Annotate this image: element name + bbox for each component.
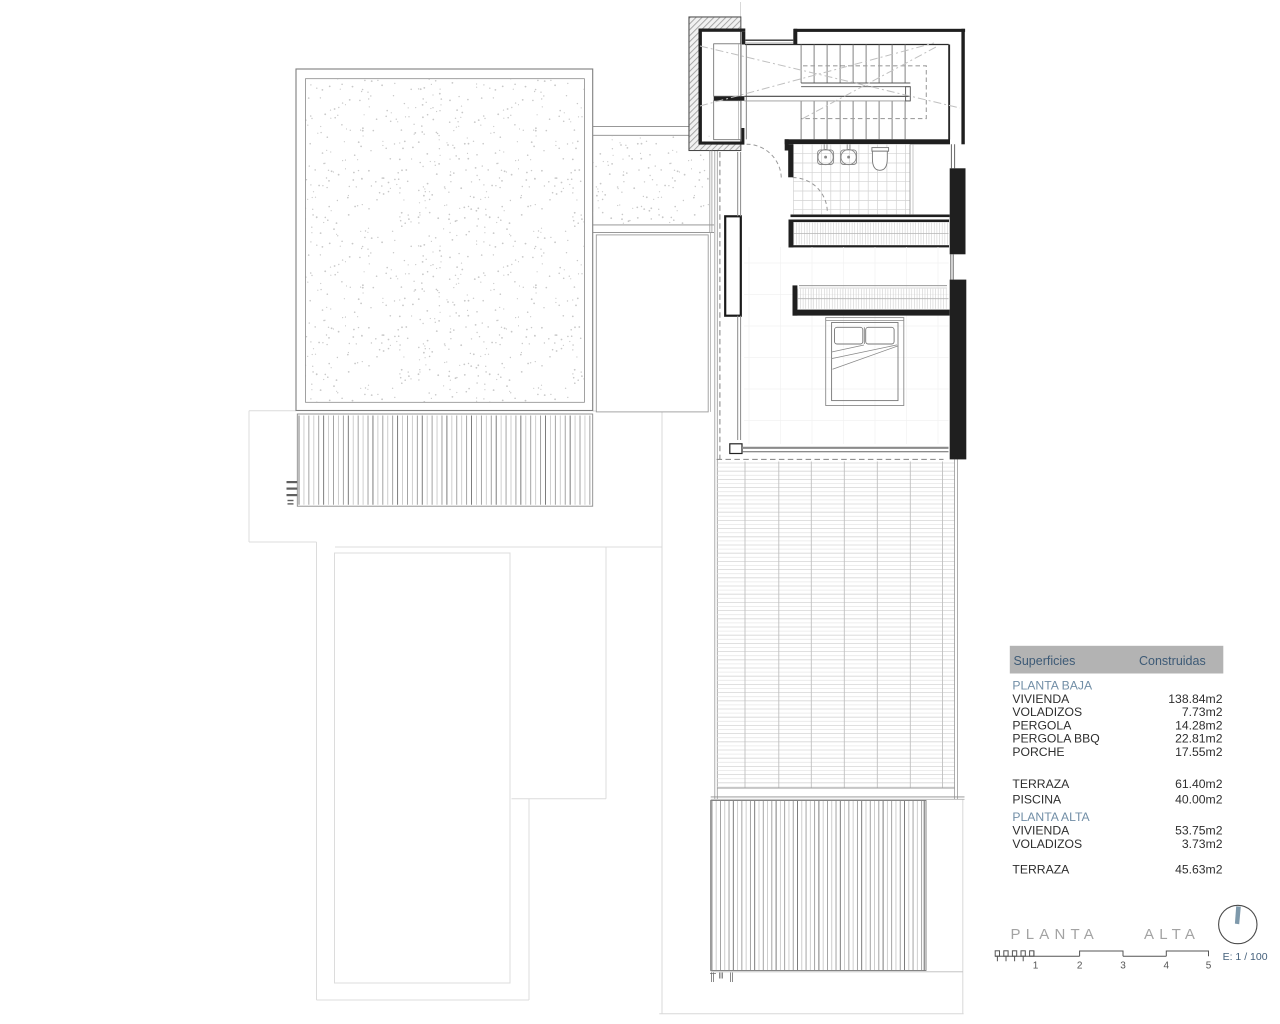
svg-text:3: 3 xyxy=(1120,961,1126,972)
svg-text:PORCHE: PORCHE xyxy=(1012,745,1064,759)
svg-text:40.00m2: 40.00m2 xyxy=(1175,793,1223,807)
svg-text:TERRAZA: TERRAZA xyxy=(1012,777,1070,791)
svg-text:53.75m2: 53.75m2 xyxy=(1175,823,1223,837)
svg-text:PLANTA: PLANTA xyxy=(1011,926,1099,943)
svg-text:4: 4 xyxy=(1164,961,1170,972)
svg-text:61.40m2: 61.40m2 xyxy=(1175,777,1223,791)
svg-text:E: 1 / 100: E: 1 / 100 xyxy=(1223,951,1268,963)
svg-text:17.55m2: 17.55m2 xyxy=(1175,745,1223,759)
svg-text:VOLADIZOS: VOLADIZOS xyxy=(1012,837,1082,851)
svg-text:PLANTA BAJA: PLANTA BAJA xyxy=(1012,679,1093,693)
svg-text:PERGOLA: PERGOLA xyxy=(1012,718,1072,732)
svg-text:3.73m2: 3.73m2 xyxy=(1182,837,1223,851)
svg-text:ALTA: ALTA xyxy=(1144,926,1200,943)
svg-text:1: 1 xyxy=(1033,961,1039,972)
svg-text:VOLADIZOS: VOLADIZOS xyxy=(1012,705,1082,719)
svg-text:2: 2 xyxy=(1077,961,1083,972)
svg-text:14.28m2: 14.28m2 xyxy=(1175,718,1223,732)
svg-text:PERGOLA BBQ: PERGOLA BBQ xyxy=(1012,731,1099,745)
svg-text:PLANTA ALTA: PLANTA ALTA xyxy=(1012,810,1090,824)
svg-text:Construidas: Construidas xyxy=(1139,654,1206,668)
svg-text:PISCINA: PISCINA xyxy=(1012,793,1062,807)
svg-text:VIVIENDA: VIVIENDA xyxy=(1012,692,1070,706)
svg-text:7.73m2: 7.73m2 xyxy=(1182,705,1223,719)
svg-text:45.63m2: 45.63m2 xyxy=(1175,862,1223,876)
svg-text:Superficies: Superficies xyxy=(1014,654,1076,668)
svg-text:VIVIENDA: VIVIENDA xyxy=(1012,823,1070,837)
svg-text:5: 5 xyxy=(1206,961,1212,972)
svg-text:TERRAZA: TERRAZA xyxy=(1012,862,1070,876)
svg-text:138.84m2: 138.84m2 xyxy=(1168,692,1222,706)
svg-text:22.81m2: 22.81m2 xyxy=(1175,731,1223,745)
